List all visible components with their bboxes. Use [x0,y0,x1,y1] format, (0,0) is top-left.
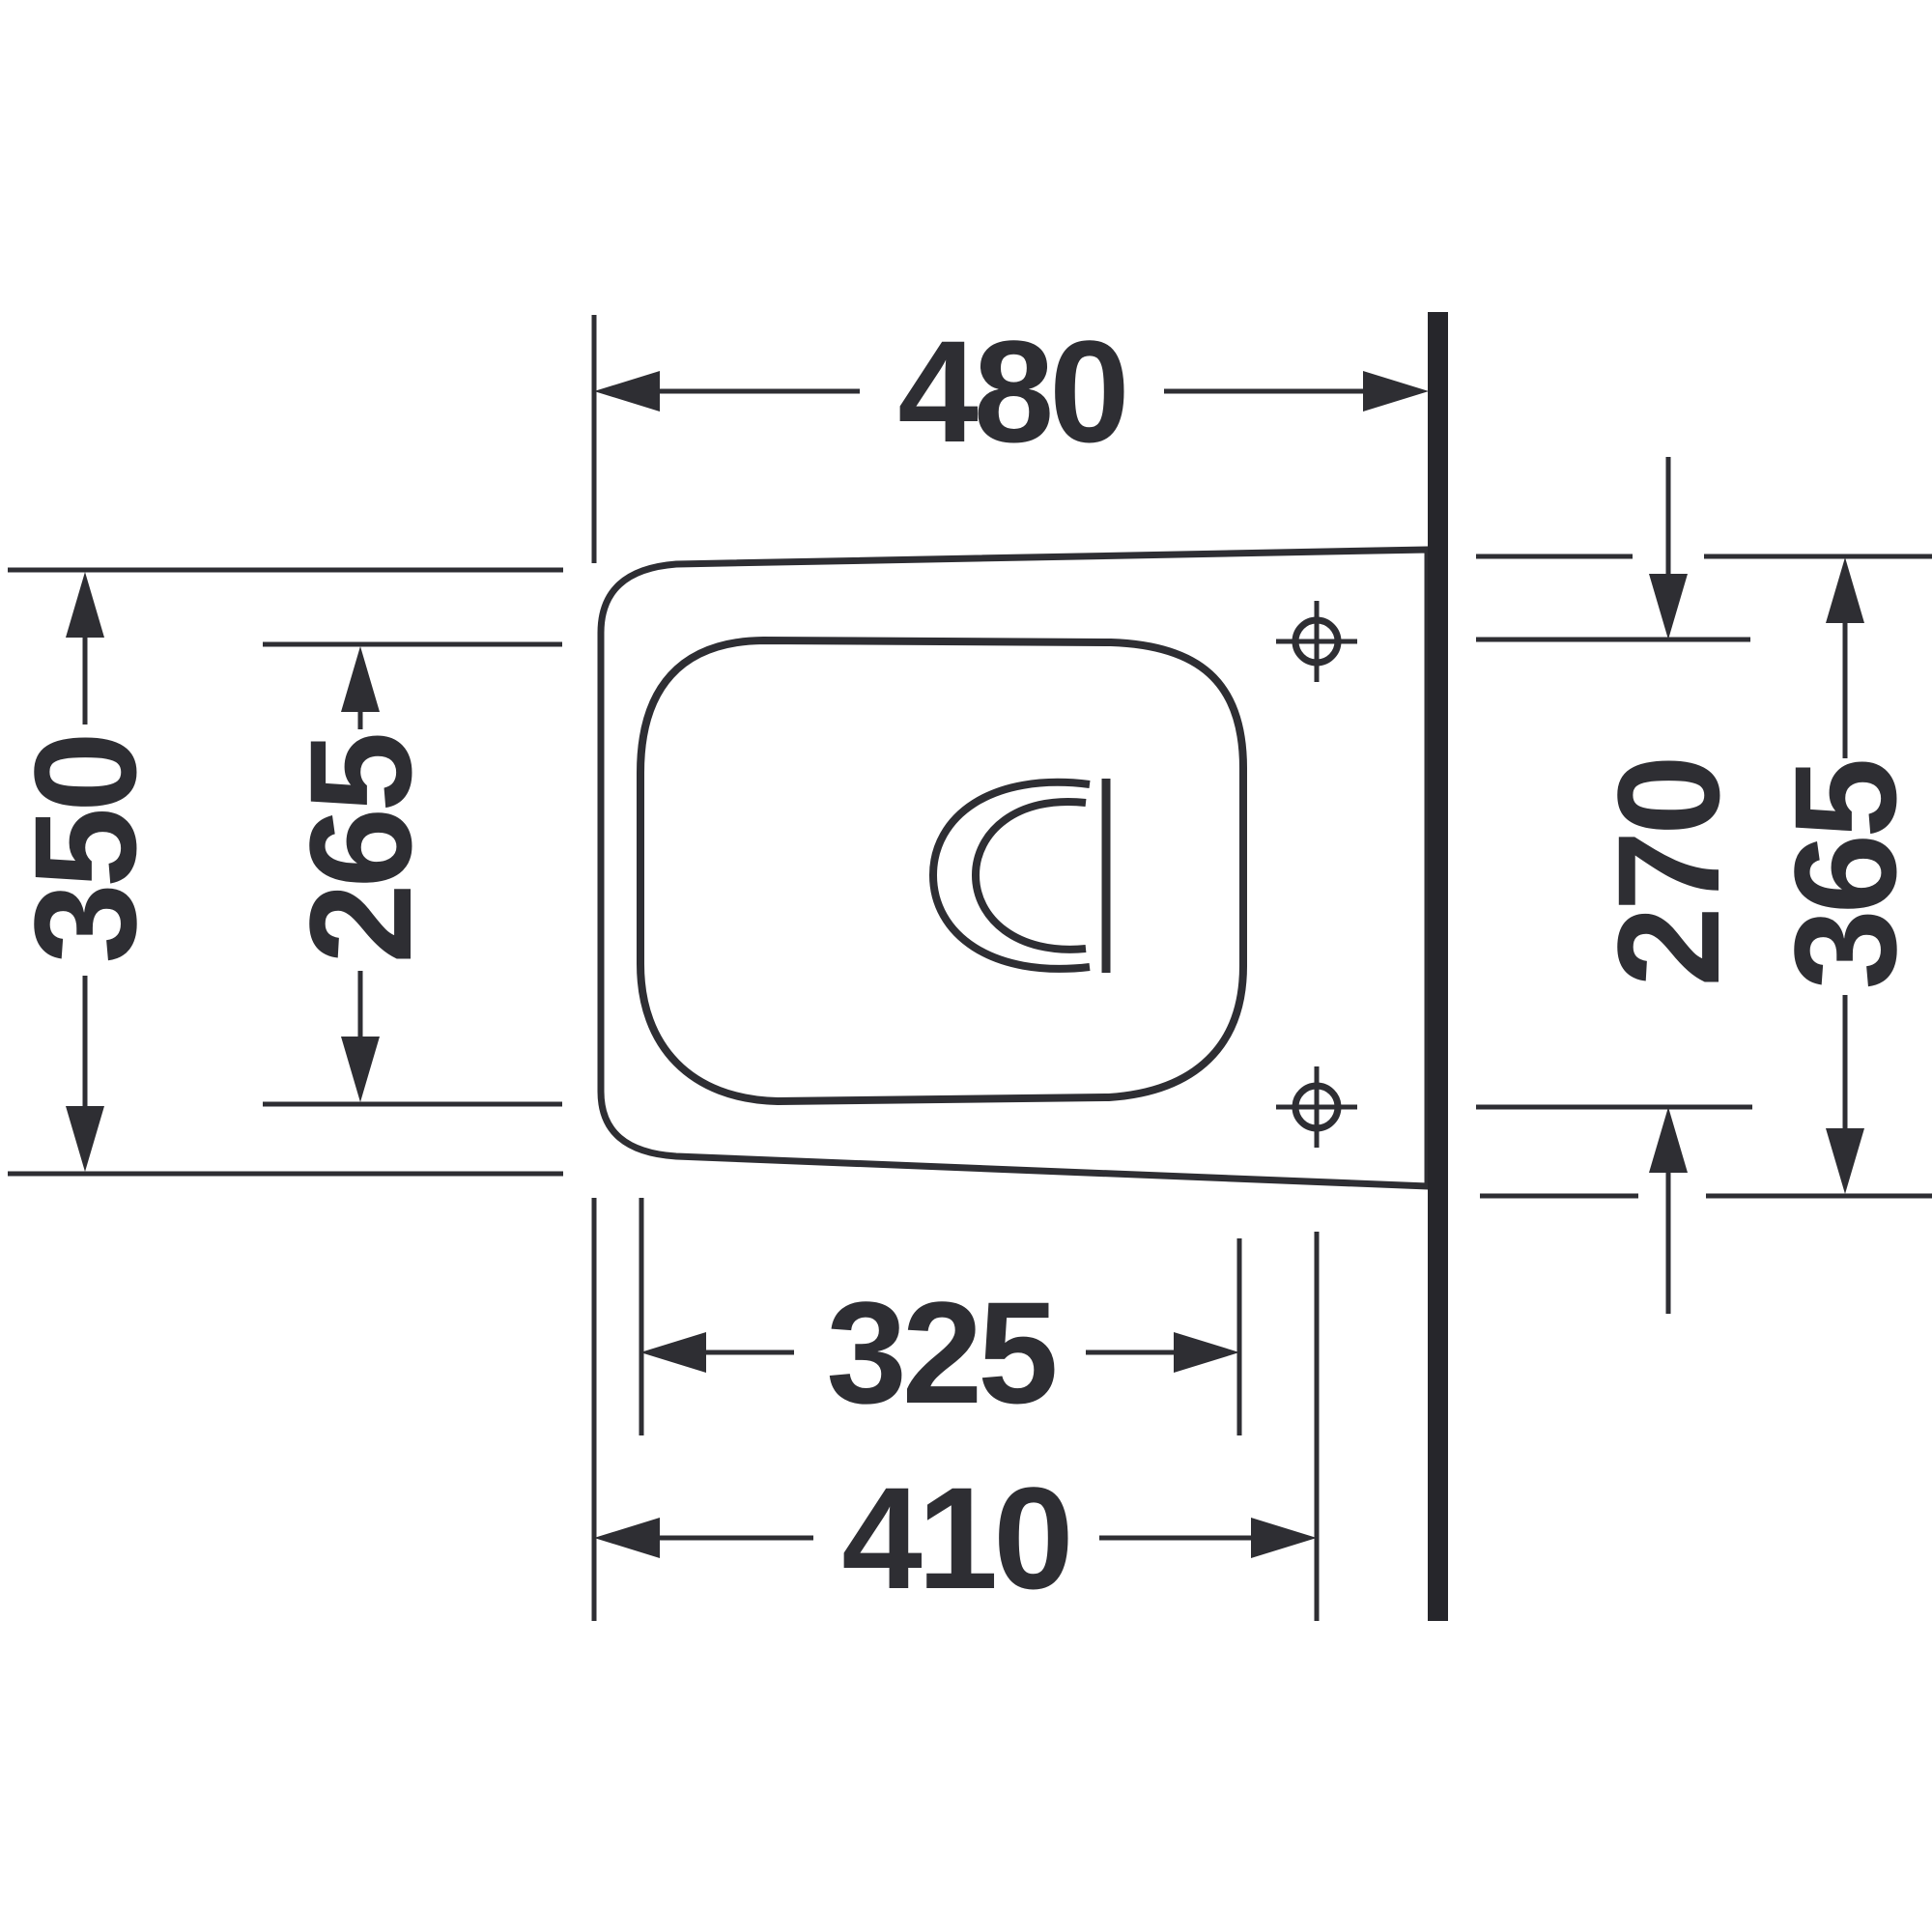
dim-270-label: 270 [1587,759,1749,986]
flush-symbol-outer-arc [933,782,1090,969]
dim-325-label: 325 [826,1271,1055,1434]
toilet-seat-outline [640,640,1243,1101]
arrow-410-right [1251,1518,1317,1558]
flush-symbol [933,779,1106,973]
arrow-265-down [341,1037,380,1102]
flush-symbol-inner-arc [976,802,1086,950]
dim-350-label: 350 [4,736,166,963]
arrow-365-up [1826,557,1864,623]
dim-480-label: 480 [897,310,1124,472]
arrow-480-left [594,371,660,412]
arrow-325-left [640,1332,706,1373]
dim-265-label: 265 [279,735,441,964]
arrow-270-bottom [1649,1107,1688,1173]
technical-drawing-page: 480 350 265 270 365 325 410 [0,0,1932,1932]
arrow-480-right [1363,371,1429,412]
wc-plan-drawing: 480 350 265 270 365 325 410 [0,0,1932,1932]
arrow-325-right [1174,1332,1239,1373]
arrow-365-down [1826,1128,1864,1194]
mounting-hole-top [1276,601,1357,682]
arrow-350-down [66,1106,104,1172]
arrow-350-up [66,572,104,638]
dim-365-label: 365 [1764,761,1926,990]
wall-line [1428,312,1448,1621]
arrow-265-up [341,646,380,712]
dimension-labels: 480 350 265 270 365 325 410 [4,310,1926,1619]
arrow-410-left [594,1518,660,1558]
mounting-hole-bottom [1276,1066,1357,1148]
dim-410-label: 410 [841,1457,1068,1619]
arrow-270-top [1649,574,1688,639]
